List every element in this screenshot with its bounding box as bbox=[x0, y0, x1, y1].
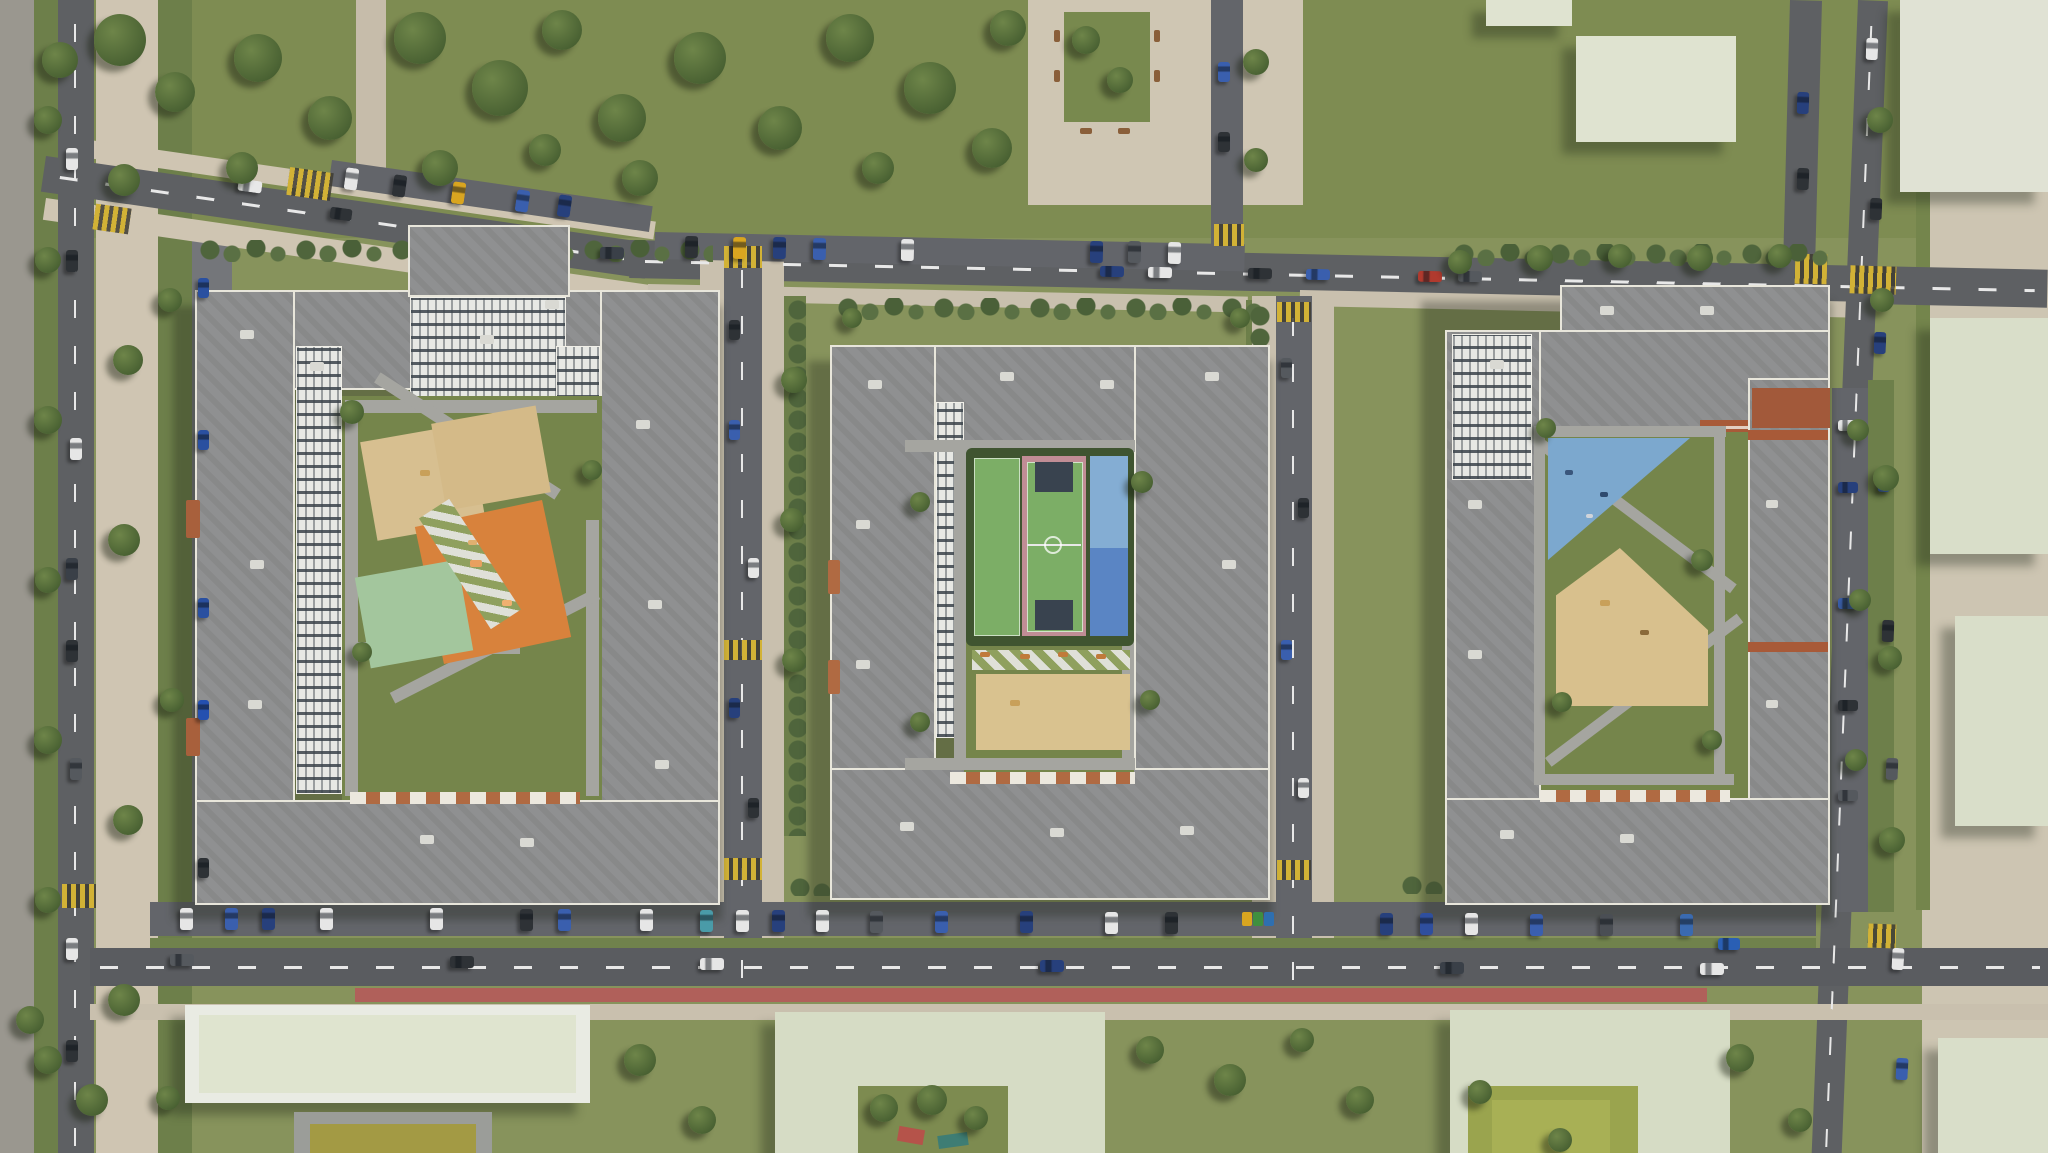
car bbox=[170, 954, 194, 966]
blue-court-light bbox=[1090, 456, 1128, 548]
path bbox=[1534, 426, 1726, 437]
car bbox=[1420, 913, 1433, 935]
tree bbox=[108, 524, 140, 556]
street1-sidewalk-e bbox=[762, 238, 784, 986]
detail-dot bbox=[502, 600, 512, 606]
car bbox=[1700, 963, 1724, 975]
entrance-canopies bbox=[950, 772, 1135, 784]
tree bbox=[155, 72, 195, 112]
car bbox=[729, 698, 740, 718]
tree bbox=[674, 32, 726, 84]
detail-dot bbox=[1264, 912, 1274, 926]
tree bbox=[1140, 690, 1160, 710]
olive-court bbox=[310, 1124, 476, 1153]
car bbox=[685, 236, 698, 258]
terracotta-accent bbox=[1748, 430, 1828, 440]
detail-dot bbox=[980, 652, 990, 657]
car bbox=[1895, 1058, 1908, 1081]
tree bbox=[1131, 471, 1153, 493]
detail-dot bbox=[900, 822, 914, 831]
car bbox=[1870, 198, 1883, 220]
tree bbox=[1290, 1028, 1314, 1052]
car bbox=[66, 640, 78, 662]
tree bbox=[34, 106, 62, 134]
tree bbox=[1552, 692, 1572, 712]
left-sidewalk bbox=[0, 0, 34, 1153]
detail-dot bbox=[1058, 652, 1068, 657]
road-right-a bbox=[1783, 0, 1822, 281]
car bbox=[748, 798, 759, 818]
detail-dot bbox=[828, 560, 840, 594]
car bbox=[1306, 269, 1330, 280]
tree bbox=[529, 134, 561, 166]
detail-dot bbox=[636, 420, 650, 429]
car bbox=[1105, 912, 1118, 934]
tree bbox=[1244, 148, 1268, 172]
tree bbox=[1072, 26, 1100, 54]
car bbox=[430, 908, 443, 930]
car bbox=[1680, 914, 1693, 936]
crosswalk bbox=[1214, 224, 1244, 246]
tree bbox=[42, 42, 78, 78]
car bbox=[748, 558, 759, 578]
detail-dot bbox=[1020, 654, 1030, 659]
tree bbox=[870, 1094, 898, 1122]
pale-building bbox=[1486, 0, 1572, 26]
detail-dot bbox=[1054, 30, 1060, 42]
crosswalk bbox=[724, 858, 762, 880]
tree bbox=[156, 1086, 180, 1110]
car bbox=[1440, 962, 1464, 974]
tree bbox=[1878, 646, 1902, 670]
detail-dot bbox=[1054, 70, 1060, 82]
tree bbox=[1788, 1108, 1812, 1132]
car bbox=[772, 910, 785, 932]
aerial-residential-complex-render bbox=[0, 0, 2048, 1153]
car bbox=[1281, 640, 1292, 660]
tree bbox=[688, 1106, 716, 1134]
car bbox=[935, 911, 948, 933]
detail-dot bbox=[1096, 654, 1106, 659]
detail-dot bbox=[468, 540, 477, 545]
car bbox=[773, 237, 786, 259]
tree bbox=[1448, 250, 1472, 274]
tree bbox=[1346, 1086, 1374, 1114]
car bbox=[1298, 498, 1309, 518]
detail-dot bbox=[240, 330, 254, 339]
car bbox=[700, 910, 713, 932]
car bbox=[1248, 268, 1272, 279]
detail-dot bbox=[1080, 128, 1092, 134]
crosswalk bbox=[724, 640, 762, 660]
tree bbox=[964, 1106, 988, 1130]
detail-dot bbox=[1766, 700, 1778, 708]
detail-dot bbox=[1000, 372, 1014, 381]
tree bbox=[1214, 1064, 1246, 1096]
car bbox=[66, 148, 78, 170]
tree bbox=[910, 492, 930, 512]
car bbox=[198, 278, 209, 298]
detail-dot bbox=[655, 760, 669, 769]
car bbox=[1148, 267, 1172, 278]
car bbox=[66, 938, 78, 960]
crosswalk bbox=[1277, 860, 1311, 880]
car bbox=[1090, 241, 1103, 263]
right-block-brick-corner bbox=[1752, 388, 1830, 428]
detail-dot bbox=[420, 470, 430, 476]
tree bbox=[758, 106, 802, 150]
bushes bbox=[836, 298, 1268, 320]
tree bbox=[972, 128, 1012, 168]
tree bbox=[1879, 827, 1905, 853]
detail-dot bbox=[1640, 630, 1649, 635]
detail-dot bbox=[1205, 372, 1219, 381]
tree bbox=[542, 10, 582, 50]
detail-dot bbox=[310, 362, 324, 371]
detail-dot bbox=[520, 838, 534, 847]
car bbox=[1866, 38, 1879, 60]
tree bbox=[862, 152, 894, 184]
detail-dot bbox=[856, 660, 870, 669]
car bbox=[1298, 778, 1309, 798]
detail-dot bbox=[1586, 514, 1593, 518]
car bbox=[1380, 913, 1393, 935]
car bbox=[1886, 758, 1899, 780]
car bbox=[70, 438, 82, 460]
car bbox=[1797, 92, 1810, 114]
playground-sand bbox=[976, 674, 1130, 750]
detail-dot bbox=[1490, 360, 1504, 369]
tree bbox=[1608, 244, 1632, 268]
tree bbox=[76, 1084, 108, 1116]
car bbox=[640, 909, 653, 931]
car bbox=[901, 239, 914, 261]
car bbox=[320, 908, 333, 930]
tree bbox=[113, 345, 143, 375]
car bbox=[262, 908, 275, 930]
car bbox=[450, 956, 474, 968]
crosswalk bbox=[1277, 302, 1311, 322]
car bbox=[198, 858, 209, 878]
tree bbox=[16, 1006, 44, 1034]
tree bbox=[1687, 245, 1713, 271]
detail-dot bbox=[1565, 470, 1573, 475]
detail-dot bbox=[470, 560, 482, 567]
detail-dot bbox=[1766, 500, 1778, 508]
car bbox=[1891, 948, 1904, 971]
tree bbox=[472, 60, 528, 116]
tree bbox=[781, 367, 807, 393]
tree bbox=[780, 508, 804, 532]
car bbox=[1838, 790, 1858, 801]
tree bbox=[34, 1046, 62, 1074]
pale-building bbox=[1938, 1038, 2048, 1153]
car bbox=[1418, 271, 1442, 282]
road-connector-top bbox=[1211, 0, 1243, 252]
car bbox=[1218, 132, 1230, 152]
car bbox=[736, 910, 749, 932]
tree bbox=[94, 14, 146, 66]
tree bbox=[34, 406, 62, 434]
right-block-roof-south bbox=[1445, 798, 1830, 905]
tree bbox=[113, 805, 143, 835]
detail-dot bbox=[648, 600, 662, 609]
detail-dot bbox=[420, 835, 434, 844]
car bbox=[1797, 168, 1810, 190]
entrance-canopies bbox=[350, 792, 580, 804]
tree bbox=[1468, 1080, 1492, 1104]
path bbox=[345, 400, 597, 413]
tree bbox=[1243, 49, 1269, 75]
dash-bottom bbox=[100, 966, 2040, 969]
car bbox=[870, 911, 883, 933]
car bbox=[700, 958, 724, 970]
tree bbox=[1768, 244, 1792, 268]
tree bbox=[1867, 107, 1893, 133]
left-block-facade-west bbox=[296, 346, 342, 794]
tree bbox=[904, 62, 956, 114]
detail-dot bbox=[1154, 70, 1160, 82]
detail-dot bbox=[248, 700, 262, 709]
car bbox=[558, 909, 571, 931]
left-block-roof-tower bbox=[408, 225, 570, 297]
blue-court-dark bbox=[1090, 548, 1128, 636]
car bbox=[66, 1040, 78, 1062]
detail-dot bbox=[828, 660, 840, 694]
pale-building bbox=[1955, 616, 2048, 826]
path bbox=[586, 520, 599, 796]
detail-dot bbox=[868, 380, 882, 389]
car bbox=[1040, 960, 1064, 972]
car bbox=[813, 238, 826, 260]
crosswalk bbox=[1868, 924, 1897, 949]
crosswalk bbox=[92, 204, 131, 235]
detail-dot bbox=[1180, 826, 1194, 835]
car bbox=[1600, 914, 1613, 936]
car bbox=[816, 910, 829, 932]
crosswalk bbox=[62, 884, 96, 908]
detail-dot bbox=[1600, 600, 1610, 606]
pale-building bbox=[1576, 36, 1736, 142]
entrance-canopies bbox=[1540, 790, 1730, 802]
tree bbox=[422, 150, 458, 186]
detail-dot bbox=[1700, 306, 1714, 315]
car bbox=[1465, 913, 1478, 935]
detail-dot bbox=[856, 520, 870, 529]
tree bbox=[1873, 465, 1899, 491]
detail-dot bbox=[1242, 912, 1252, 926]
school-roof bbox=[199, 1015, 576, 1093]
car bbox=[66, 250, 78, 272]
car bbox=[1168, 242, 1181, 264]
car bbox=[1874, 332, 1887, 354]
crosswalk bbox=[286, 167, 334, 201]
tree bbox=[1691, 549, 1713, 571]
basketball-key-bottom bbox=[1035, 600, 1073, 630]
car bbox=[1165, 912, 1178, 934]
tree bbox=[108, 164, 140, 196]
car bbox=[520, 909, 533, 931]
car bbox=[198, 700, 209, 720]
tree bbox=[1136, 1036, 1164, 1064]
street2-sidewalk-e bbox=[1312, 296, 1334, 986]
basketball-center-circle bbox=[1044, 536, 1062, 554]
detail-dot bbox=[1100, 380, 1114, 389]
tree bbox=[160, 688, 184, 712]
tree bbox=[1845, 749, 1867, 771]
car bbox=[1020, 911, 1033, 933]
car bbox=[1838, 482, 1858, 493]
tree bbox=[598, 94, 646, 142]
tree bbox=[1107, 67, 1133, 93]
path bbox=[1534, 426, 1545, 784]
tree bbox=[782, 648, 806, 672]
tree bbox=[35, 567, 61, 593]
detail-dot bbox=[1468, 650, 1482, 659]
detail-dot bbox=[250, 560, 264, 569]
right-block-facade-nw bbox=[1452, 334, 1532, 480]
tree bbox=[394, 12, 446, 64]
detail-dot bbox=[1600, 492, 1608, 497]
tree bbox=[624, 1044, 656, 1076]
detail-dot bbox=[1010, 700, 1020, 706]
car bbox=[1281, 358, 1292, 378]
tree bbox=[226, 152, 258, 184]
detail-dot bbox=[545, 300, 559, 309]
car bbox=[180, 908, 193, 930]
car bbox=[600, 247, 624, 259]
tree bbox=[1726, 1044, 1754, 1072]
car bbox=[70, 758, 82, 780]
terracotta-accent bbox=[1748, 642, 1828, 652]
tree bbox=[352, 642, 372, 662]
tree bbox=[1230, 308, 1250, 328]
tree bbox=[234, 34, 282, 82]
multi-court-green bbox=[974, 458, 1020, 636]
detail-dot bbox=[1600, 306, 1614, 315]
tree bbox=[842, 308, 862, 328]
tree bbox=[582, 460, 602, 480]
car bbox=[198, 598, 209, 618]
detail-dot bbox=[1222, 560, 1236, 569]
path bbox=[1534, 774, 1734, 785]
car bbox=[1100, 266, 1124, 277]
path bbox=[954, 440, 966, 770]
detail-dot bbox=[480, 335, 494, 344]
car bbox=[225, 908, 238, 930]
detail-dot bbox=[186, 500, 200, 538]
tree bbox=[34, 726, 62, 754]
car bbox=[1882, 620, 1895, 642]
detail-dot bbox=[1468, 500, 1482, 509]
pale-building bbox=[1900, 0, 2048, 192]
detail-dot bbox=[1154, 30, 1160, 42]
car bbox=[729, 420, 740, 440]
path bbox=[905, 758, 1135, 770]
detail-dot bbox=[1253, 912, 1263, 926]
tree bbox=[990, 10, 1026, 46]
detail-dot bbox=[186, 718, 200, 756]
detail-dot bbox=[1118, 128, 1130, 134]
tree bbox=[910, 712, 930, 732]
tree bbox=[622, 160, 658, 196]
car bbox=[198, 430, 209, 450]
pale-building bbox=[1930, 318, 2048, 554]
tree bbox=[917, 1085, 947, 1115]
tree bbox=[826, 14, 874, 62]
car bbox=[1128, 241, 1141, 263]
car bbox=[1530, 914, 1543, 936]
detail-dot bbox=[1620, 834, 1634, 843]
car bbox=[733, 237, 746, 259]
car bbox=[66, 558, 78, 580]
playground-sand bbox=[431, 405, 551, 510]
tree bbox=[1702, 730, 1722, 750]
path bbox=[345, 400, 358, 796]
detail-dot bbox=[1500, 830, 1514, 839]
tree bbox=[1548, 1128, 1572, 1152]
car bbox=[1718, 938, 1740, 950]
tree bbox=[35, 887, 61, 913]
tree bbox=[308, 96, 352, 140]
car bbox=[1838, 700, 1858, 711]
tree bbox=[340, 400, 364, 424]
basketball-key-top bbox=[1035, 462, 1073, 492]
tree bbox=[1849, 589, 1871, 611]
tree bbox=[108, 984, 140, 1016]
detail-dot bbox=[1050, 828, 1064, 837]
tree bbox=[1536, 418, 1556, 438]
checker-path bbox=[972, 650, 1130, 670]
tree bbox=[35, 247, 61, 273]
tree bbox=[158, 288, 182, 312]
tree bbox=[1870, 288, 1894, 312]
tree bbox=[1527, 245, 1553, 271]
car bbox=[729, 320, 740, 340]
car bbox=[1218, 62, 1230, 82]
tree bbox=[1847, 419, 1869, 441]
bike-lane-red bbox=[355, 988, 1707, 1002]
left-block-roof-south bbox=[195, 800, 720, 905]
